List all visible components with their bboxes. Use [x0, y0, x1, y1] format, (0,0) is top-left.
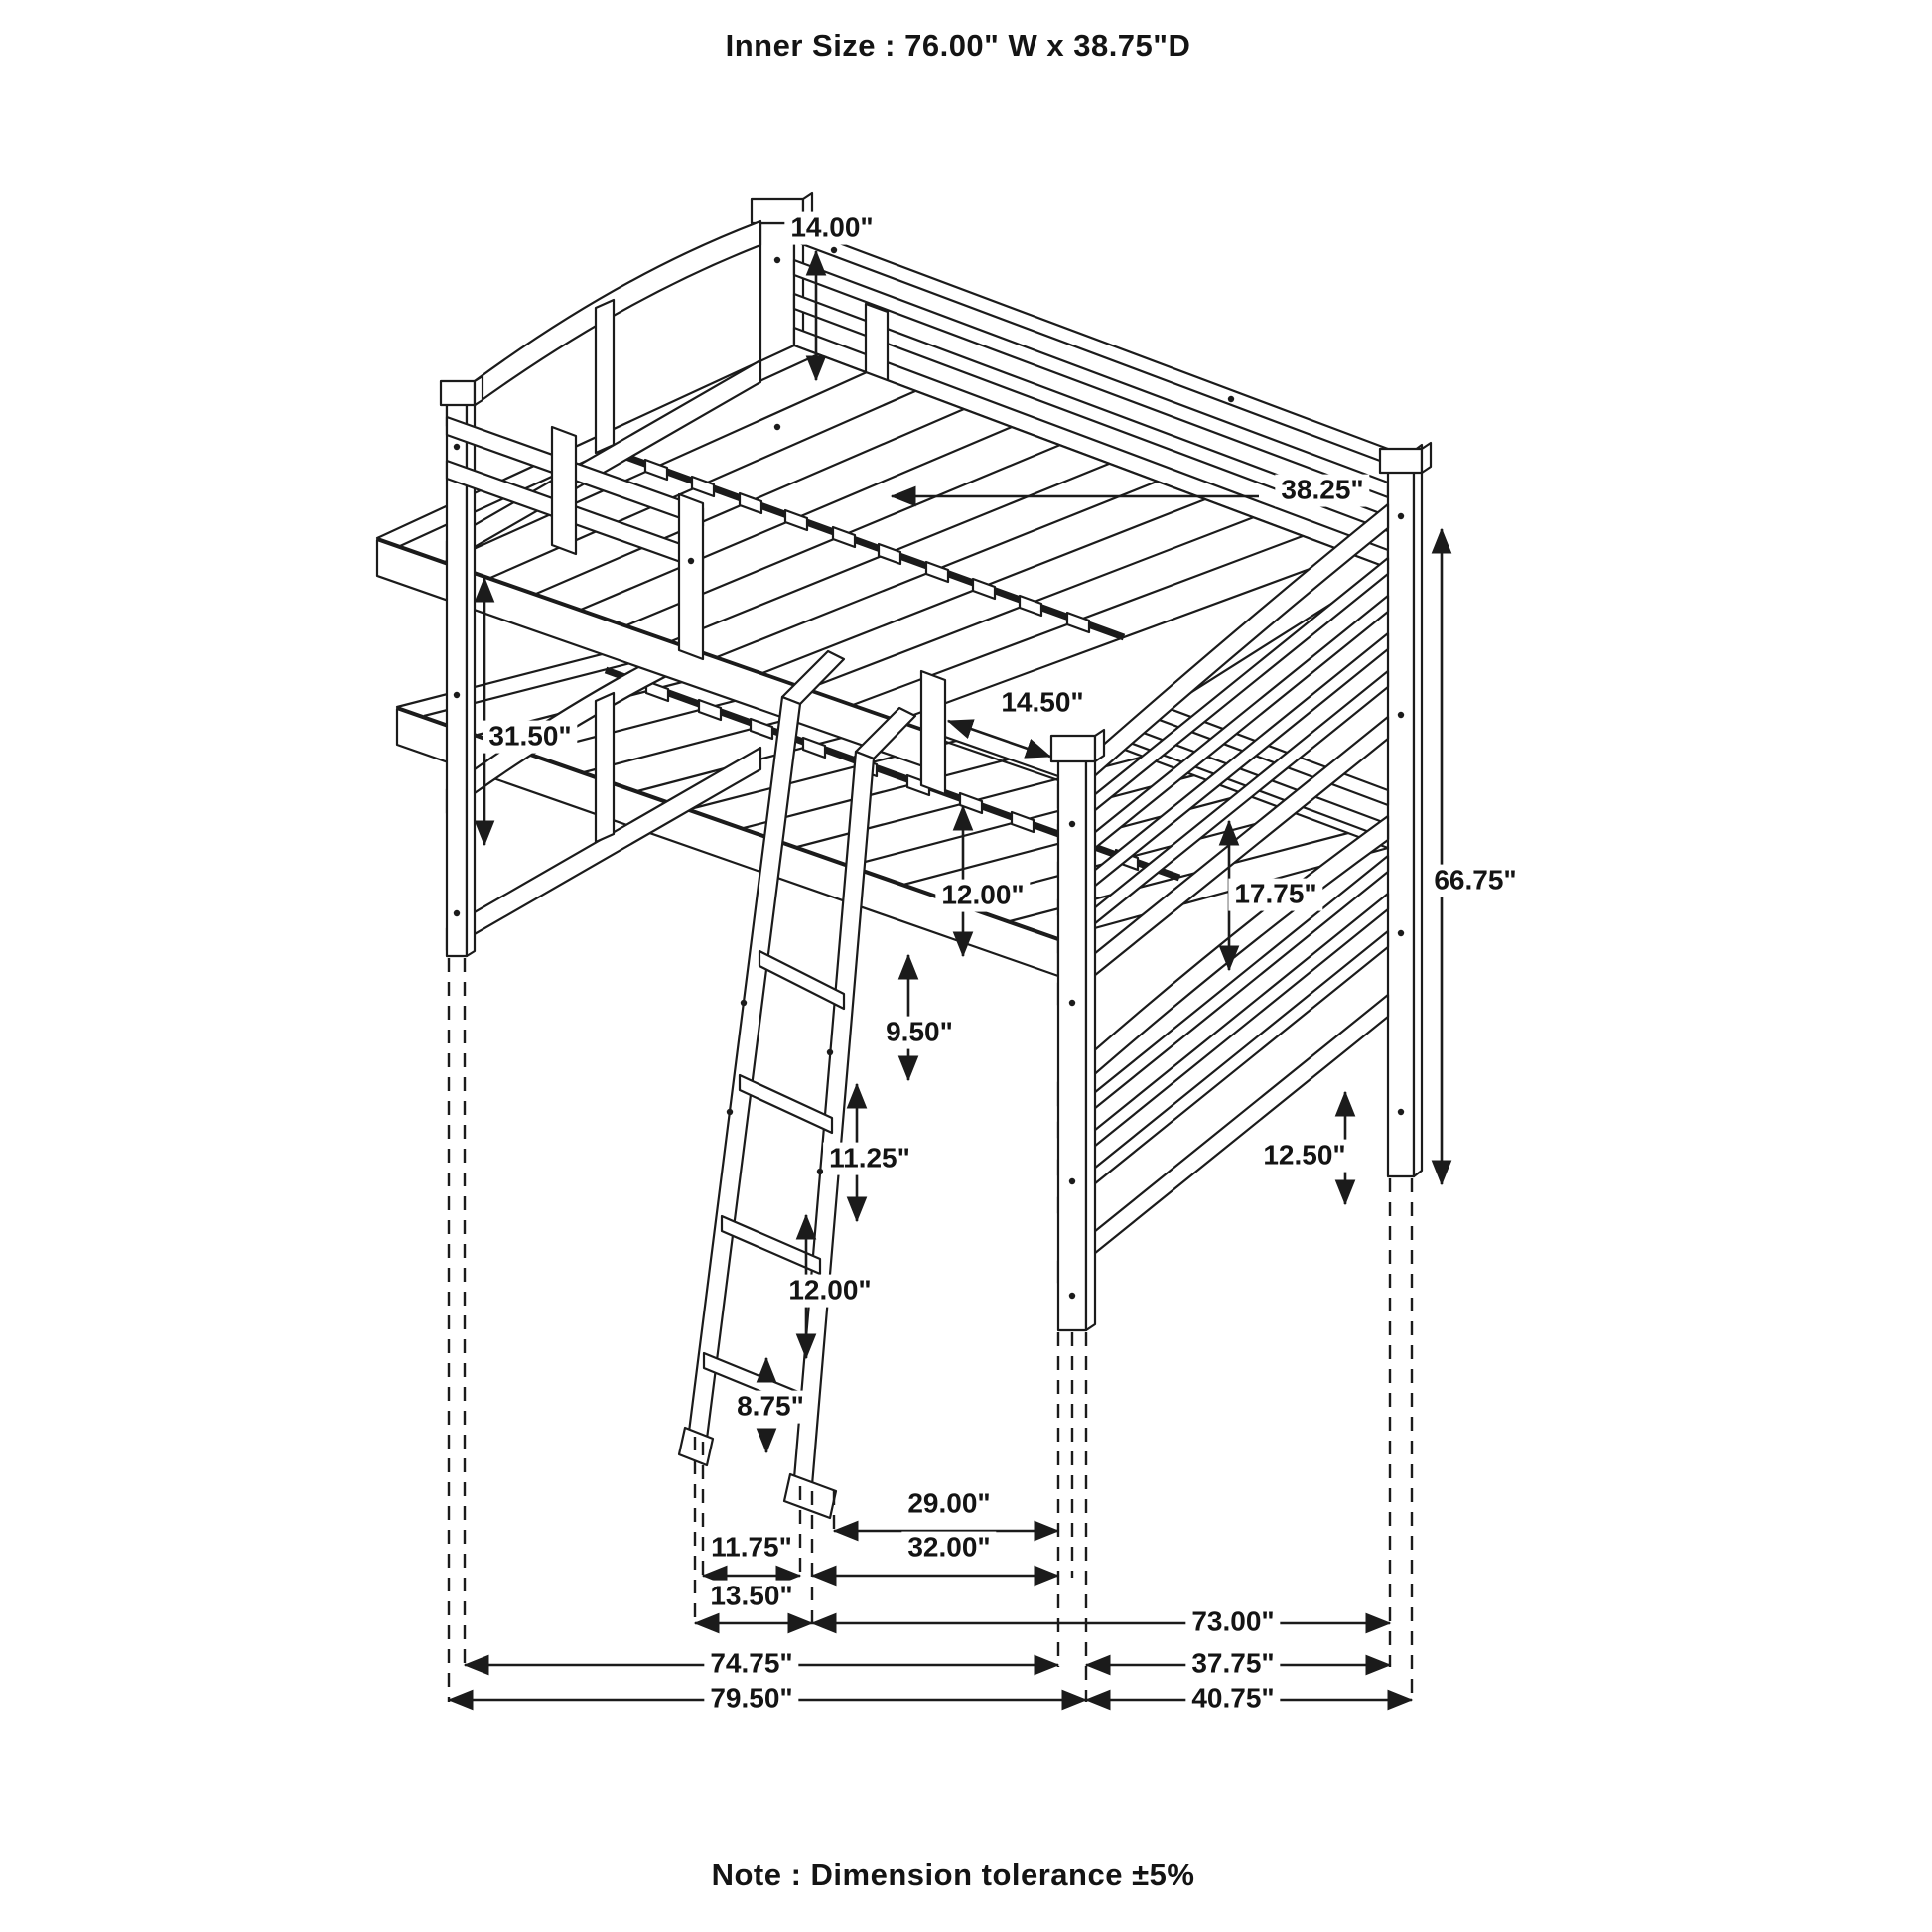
dim-label-rail-height: 14.00"	[784, 212, 879, 245]
dim-label-step-bottom: 8.75"	[731, 1391, 810, 1424]
dim-label-overall-height: 66.75"	[1428, 865, 1522, 897]
tolerance-note: Note : Dimension tolerance ±5%	[706, 1858, 1201, 1893]
dim-label-inner-depth: 38.25"	[1275, 475, 1369, 507]
dim-label-ladder-opening: 14.50"	[995, 687, 1089, 720]
dashed-reference-lines	[449, 958, 1412, 1702]
dim-label-feet-outer: 13.50"	[704, 1581, 798, 1613]
dim-label-frame-width: 37.75"	[1185, 1648, 1280, 1681]
dim-label-frame-length: 74.75"	[704, 1648, 798, 1681]
dim-label-inner-length: 73.00"	[1185, 1606, 1280, 1639]
dim-label-post-to-post: 29.00"	[901, 1488, 996, 1521]
dim-label-overall-width: 40.75"	[1185, 1683, 1280, 1716]
dim-label-ladder-span: 32.00"	[901, 1532, 996, 1565]
dimension-drawing-page: Inner Size : 76.00" W x 38.75"D Note : D…	[0, 0, 1932, 1932]
page-title: Inner Size : 76.00" W x 38.75"D	[720, 28, 1197, 64]
dim-label-step-3: 11.25"	[823, 1143, 916, 1175]
dim-label-bunk-clearance: 31.50"	[483, 721, 577, 754]
dim-label-foot-panel: 17.75"	[1228, 879, 1322, 911]
dim-label-step-top: 12.00"	[935, 880, 1030, 912]
dim-label-step-2: 9.50"	[880, 1017, 959, 1049]
dim-label-feet-inner: 11.75"	[705, 1532, 798, 1565]
dim-label-step-4: 12.00"	[782, 1275, 877, 1308]
dim-label-overall-length: 79.50"	[704, 1683, 798, 1716]
dim-label-under-clearance: 12.50"	[1257, 1140, 1351, 1173]
bunk-bed-line-drawing	[0, 0, 1932, 1932]
